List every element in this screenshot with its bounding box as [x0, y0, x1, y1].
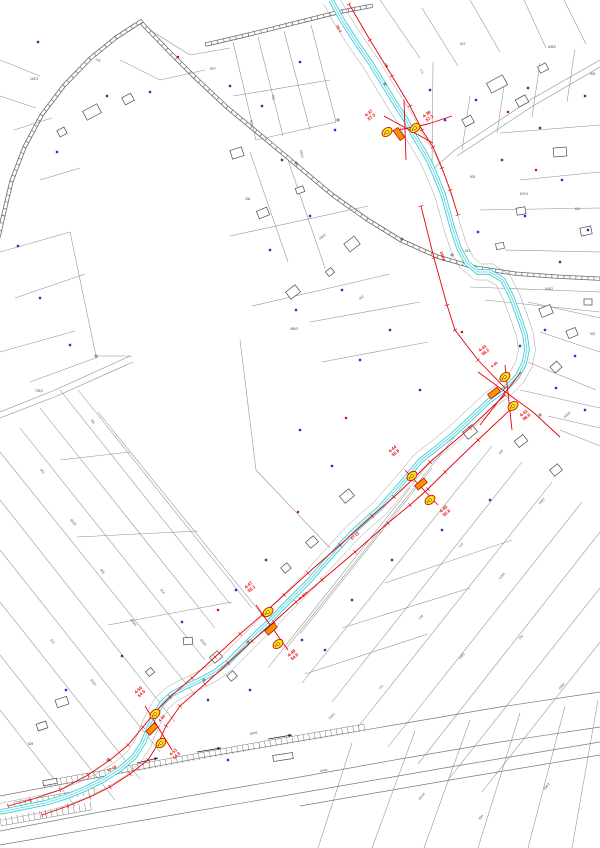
parcel-number-label: 834: [478, 814, 485, 821]
building-outline: [496, 242, 505, 249]
cadastral-survey-map-page: 05-44B248-057-13R-10457-164-404-524-3757…: [0, 0, 600, 848]
railway-tie: [431, 252, 432, 255]
railway-tie: [355, 210, 357, 213]
parcel-boundary: [256, 470, 330, 548]
control-point-blue: [501, 159, 503, 161]
cross-mark: [336, 118, 340, 122]
parcel-boundary: [478, 713, 520, 848]
railway-tie: [16, 164, 19, 165]
railway-tie: [231, 110, 233, 113]
cross-mark: [538, 413, 542, 417]
control-point-blue: [351, 599, 353, 601]
road-edge: [0, 742, 600, 845]
railway-tie: [120, 33, 122, 36]
railway-tie: [360, 214, 362, 217]
railway-tie: [383, 229, 385, 232]
building-outline: [325, 267, 334, 276]
control-point-blue: [389, 329, 391, 331]
parcel-boundary: [150, 30, 190, 55]
parcel-number-label: 452: [358, 294, 365, 301]
parcel-number-label: 142/3: [30, 77, 38, 81]
railway-tie: [419, 247, 420, 250]
railway-tie: [267, 28, 268, 31]
parcel-boundary: [448, 588, 600, 780]
railway-tie: [194, 76, 196, 78]
railway-tie: [212, 93, 214, 96]
control-point-blue: [419, 389, 421, 391]
parcel-boundary: [380, 0, 420, 58]
control-point-blue: [309, 215, 311, 217]
parcel-number-label: 630/1: [563, 410, 572, 418]
parcel-boundary: [256, 122, 336, 140]
parcel-number-label: 607/4: [520, 192, 528, 196]
parcel-boundary: [528, 706, 565, 848]
parcel-road-edge: [455, 60, 600, 150]
railway-tie: [372, 222, 374, 225]
railway-tie: [332, 194, 334, 197]
traverse-crossing: [533, 412, 560, 437]
parcel-boundary: [564, 0, 586, 44]
parcel-number-label: 716: [418, 614, 425, 621]
control-point-blue: [584, 409, 586, 411]
railway-tie: [40, 114, 43, 116]
control-point-blue: [17, 245, 19, 247]
control-point-blue: [519, 345, 521, 347]
railway-rail: [0, 22, 143, 238]
railway-tie: [5, 202, 8, 203]
comb-tick: [34, 812, 35, 820]
building-outline: [55, 696, 69, 707]
railway-tie: [260, 134, 262, 137]
survey-station-label: 4-3757.3: [364, 108, 377, 121]
building-outline: [340, 489, 355, 504]
railway-tie: [211, 42, 212, 45]
stream-centerline: [0, 0, 527, 812]
railway-tie: [372, 4, 373, 7]
railway-tie: [322, 185, 324, 188]
parcel-boundary: [385, 540, 512, 583]
parcel-boundary: [230, 206, 368, 236]
railway-tie: [34, 125, 37, 127]
railway-tie: [8, 188, 11, 189]
parcel-number-label: 825: [28, 742, 34, 746]
stream-fill: [0, 0, 527, 812]
building-outline: [550, 464, 563, 476]
building-outline: [514, 434, 528, 447]
parcel-boundary: [567, 49, 575, 102]
building-outline: [256, 207, 269, 219]
comb-tick: [204, 752, 205, 759]
railway-tie: [115, 36, 117, 39]
parcel-number-label: 505: [590, 72, 596, 76]
building-outline: [83, 104, 102, 120]
building-layer: [36, 63, 592, 786]
survey-station-label: 4-4755.1: [243, 580, 256, 594]
parcel-boundary: [190, 48, 230, 55]
railway-tie: [29, 136, 32, 138]
control-point-blue: [587, 229, 589, 231]
parcel-boundary: [60, 390, 230, 604]
railway-tie: [437, 255, 438, 258]
parcel-boundary: [268, 488, 410, 668]
comb-tick: [94, 788, 95, 794]
parcel-number-label: 806: [99, 568, 106, 575]
parcel-boundary: [524, 0, 546, 48]
survey-station-marker: [380, 125, 394, 138]
railway-tie: [240, 118, 242, 121]
parcel-boundary: [78, 390, 252, 608]
building-outline: [122, 93, 135, 105]
railway-tie: [323, 14, 324, 17]
parcel-number-label: 815/1: [89, 678, 97, 687]
railway-tie: [55, 95, 58, 97]
control-point-blue: [561, 179, 563, 181]
traverse-distance-label: 4-40: [490, 361, 498, 369]
building-outline: [286, 285, 301, 299]
comb-tick: [182, 756, 183, 763]
parcel-number-label: 836/2: [543, 782, 551, 791]
bridge-marker: [415, 478, 428, 490]
parcel-boundary: [300, 468, 432, 634]
railway-tie: [217, 40, 218, 43]
railway-tie: [495, 269, 496, 272]
flow-arrow-head: [154, 757, 158, 760]
railway-tie: [360, 6, 361, 9]
railway-tie: [3, 208, 6, 209]
label-layer: 142/312856/1431432433/2436440/1452455/3k…: [28, 42, 596, 821]
parcel-number-label: 431: [249, 119, 254, 125]
control-point-blue: [331, 465, 333, 467]
parcel-boundary: [520, 172, 600, 180]
railway-tie: [136, 23, 138, 26]
parcel-number-label: 455/3: [290, 327, 298, 331]
comb-tick: [23, 814, 24, 822]
parcel-number-label: 735/2: [558, 682, 566, 691]
building-outline: [515, 95, 528, 107]
railway-tie: [23, 147, 26, 148]
railway-tie: [406, 242, 408, 245]
building-outline: [57, 127, 67, 137]
railway-tie: [389, 232, 391, 235]
parcel-number-label: k.ú.: [419, 69, 425, 76]
parcel-boundary: [480, 208, 600, 210]
control-point-blue: [121, 655, 123, 657]
parcel-boundary: [0, 60, 40, 76]
building-outline: [553, 147, 567, 157]
stream-layer: [0, 0, 527, 812]
parcel-boundary: [77, 531, 198, 537]
comb-tick: [165, 759, 166, 766]
railway-tie: [275, 147, 277, 150]
parcel-boundary: [240, 340, 256, 470]
railway-tie: [166, 48, 168, 50]
control-point-blue: [56, 151, 58, 153]
railway-tie: [89, 58, 91, 60]
parcel-number-label: 512: [460, 42, 466, 46]
survey-station-marker: [271, 637, 285, 650]
comb-tick: [11, 816, 12, 824]
building-outline: [537, 63, 548, 73]
railway-tie: [145, 26, 147, 28]
parcel-boundary: [40, 168, 80, 180]
control-point-blue: [261, 105, 263, 107]
parcel-boundary: [418, 532, 600, 764]
railway-tie: [338, 198, 340, 201]
parcel-boundary: [120, 60, 160, 80]
parcel-number-label: 432: [271, 94, 276, 100]
parcel-boundary: [250, 152, 288, 262]
parcel-boundary: [310, 302, 420, 322]
control-point-blue: [181, 621, 183, 623]
railway-tie: [235, 114, 237, 117]
railway-tie: [226, 106, 228, 109]
parcel-boundary: [0, 452, 195, 695]
parcel-boundary: [0, 550, 160, 752]
comb-tick: [6, 817, 7, 825]
railway-tie: [450, 259, 451, 262]
survey-station-label: 4-4156.2: [478, 343, 491, 356]
control-point-blue: [299, 61, 301, 63]
parcel-boundary: [15, 274, 85, 298]
control-point-blue: [106, 95, 108, 97]
parcel-boundary: [424, 720, 470, 848]
railway-tie: [184, 67, 186, 69]
building-outline: [462, 115, 475, 127]
railway-tie: [286, 24, 287, 27]
railway-tie: [354, 8, 355, 11]
parcel-boundary: [0, 655, 115, 800]
parcel-number-label: 801: [39, 468, 46, 475]
railway-tie: [273, 27, 274, 30]
traverse-distance-label: 4B: [383, 63, 389, 69]
railway-tie: [170, 53, 172, 55]
railway-tie: [378, 225, 380, 228]
parcel-boundary: [560, 430, 600, 446]
survey-station-marker: [423, 493, 437, 506]
traverse-crossing: [404, 100, 406, 160]
control-point-blue: [574, 355, 576, 357]
stream-flank-layer: [0, 0, 535, 820]
control-point-blue: [149, 91, 151, 93]
parcel-road-edge: [457, 67, 600, 156]
railway-tie: [230, 37, 231, 40]
railway-tie: [245, 122, 247, 125]
comb-tick: [215, 750, 216, 757]
comb-tick: [193, 754, 194, 761]
railway-tie: [125, 29, 127, 32]
railway-tie: [80, 67, 82, 69]
railway-tie: [236, 36, 237, 39]
control-point-red: [177, 56, 179, 58]
railway-tie: [180, 62, 182, 64]
control-point-blue: [65, 689, 67, 691]
railway-tie: [395, 236, 397, 239]
comb-tick: [79, 804, 80, 812]
railway-tie: [311, 177, 313, 180]
control-point-blue: [544, 329, 546, 331]
control-point-blue: [444, 119, 446, 121]
control-point-red: [345, 417, 347, 419]
building-outline: [539, 305, 553, 318]
parcel-boundary: [0, 232, 70, 252]
comb-tick: [226, 748, 227, 755]
railway-tie: [223, 39, 224, 42]
railway-tie: [131, 26, 133, 29]
railway-tie: [305, 19, 306, 22]
parcel-boundary: [318, 743, 352, 848]
parcel-boundary: [302, 446, 492, 683]
railway-tie: [2, 215, 5, 216]
building-outline: [145, 667, 154, 676]
building-outline: [566, 327, 578, 338]
control-point-blue: [281, 159, 283, 161]
building-outline: [584, 299, 592, 305]
building-outline: [183, 637, 193, 645]
comb-tick: [60, 778, 61, 785]
parcel-boundary: [20, 428, 205, 660]
railway-tie: [71, 76, 73, 78]
parcel-number-label: 612: [465, 249, 471, 253]
parcel-boundary: [233, 80, 330, 96]
railway-tie: [7, 195, 10, 196]
control-point-blue: [334, 129, 336, 131]
railway-tie: [255, 130, 257, 133]
control-point-blue: [227, 759, 229, 761]
railway-tie: [62, 85, 65, 87]
parcel-number-label: 795: [89, 418, 96, 425]
parcel-boundary: [258, 37, 283, 136]
parcel-boundary: [0, 331, 75, 352]
stream-outline: [0, 0, 527, 812]
parcel-road-edge: [0, 356, 130, 412]
parcel-boundary: [108, 602, 232, 625]
railway-tie: [221, 102, 223, 105]
control-point-blue: [539, 127, 541, 129]
parcel-number-label: 829/1: [249, 730, 258, 736]
building-outline: [486, 75, 507, 93]
railway-tie: [205, 43, 206, 46]
railway-tie: [306, 173, 308, 176]
railway-tie: [301, 168, 303, 171]
comb-tick: [220, 749, 221, 756]
railway-tie: [110, 41, 112, 44]
traverse-distance-label: 05-4: [335, 25, 343, 34]
parcel-boundary: [528, 362, 596, 390]
comb-tick: [28, 813, 29, 821]
parcel-number-label: 832/4: [418, 792, 426, 801]
comb-tick: [39, 811, 40, 819]
control-point-blue: [584, 95, 586, 97]
building-outline: [580, 226, 592, 236]
railway-tie: [261, 30, 262, 33]
railway-tie: [250, 126, 252, 129]
railway-tie: [286, 155, 288, 158]
building-outline: [273, 752, 294, 761]
railway-tie: [149, 31, 151, 33]
railway-tie: [298, 20, 299, 23]
parcel-boundary: [358, 482, 552, 727]
railway-tie: [279, 25, 280, 28]
control-point-blue: [301, 639, 303, 641]
building-outline: [43, 778, 58, 786]
parcel-boundary: [70, 232, 96, 356]
parcel-boundary: [252, 274, 390, 306]
control-point-blue: [559, 261, 561, 263]
railway-tie: [161, 44, 163, 46]
control-point-blue: [265, 559, 267, 561]
parcel-boundary: [60, 452, 130, 460]
comb-tick: [84, 803, 85, 811]
survey-station-label: 4-3857.1: [422, 109, 435, 122]
control-point-blue: [324, 649, 326, 651]
parcel-boundary: [572, 700, 598, 848]
traverse-tick: [129, 772, 132, 776]
control-point-blue: [524, 215, 526, 217]
control-point-blue: [39, 297, 41, 299]
parcel-number-label: 610: [575, 207, 581, 211]
comb-tick: [17, 815, 18, 823]
control-point-blue: [295, 309, 297, 311]
railway-tie: [242, 34, 243, 37]
railway-tie: [94, 53, 96, 56]
railway-tie: [44, 109, 47, 111]
railway-tie: [76, 71, 78, 73]
control-point-blue: [229, 85, 231, 87]
parcel-number-label: 128: [95, 57, 102, 63]
control-point-blue: [527, 87, 529, 89]
comb-tick: [209, 751, 210, 758]
parcel-number-label: 433/2: [299, 149, 304, 158]
railway-tie: [254, 31, 255, 34]
railway-tie: [343, 202, 345, 205]
parcel-number-label: 705: [498, 449, 505, 456]
parcel-boundary: [40, 408, 215, 628]
parcel-number-label: 818: [159, 588, 166, 595]
control-point-red: [461, 331, 463, 333]
parcel-boundary: [322, 342, 428, 362]
traverse-distance-label: 248-0: [439, 251, 446, 261]
building-outline: [516, 207, 526, 215]
control-point-blue: [391, 559, 393, 561]
parcel-boundary: [0, 96, 36, 108]
railway-tie: [141, 19, 143, 22]
parcel-boundary: [422, 8, 458, 66]
cross-mark: [450, 253, 454, 257]
parcel-boundary: [470, 0, 500, 52]
parcel-number-label: 793/2: [35, 389, 43, 393]
building-outline: [230, 147, 244, 159]
control-point-blue: [477, 231, 479, 233]
stream-bank-track: [2, 0, 536, 820]
parcel-number-label: 724/1: [328, 712, 336, 721]
parcel-number-label: 618/2: [545, 287, 553, 291]
control-point-blue: [299, 429, 301, 431]
control-point-blue: [555, 387, 557, 389]
railway-tie: [51, 99, 54, 101]
comb-tick: [187, 755, 188, 762]
railway-tie: [217, 97, 219, 100]
comb-tick: [90, 802, 91, 810]
parcel-number-label: 603: [470, 175, 476, 179]
building-outline: [281, 563, 292, 574]
railway-tie: [311, 17, 312, 20]
railway-tie: [207, 89, 209, 91]
parcel-boundary: [520, 390, 600, 408]
parcel-boundary: [30, 357, 98, 382]
railway-layer: [0, 4, 600, 280]
parcel-boundary: [505, 250, 600, 252]
building-outline: [306, 536, 319, 549]
